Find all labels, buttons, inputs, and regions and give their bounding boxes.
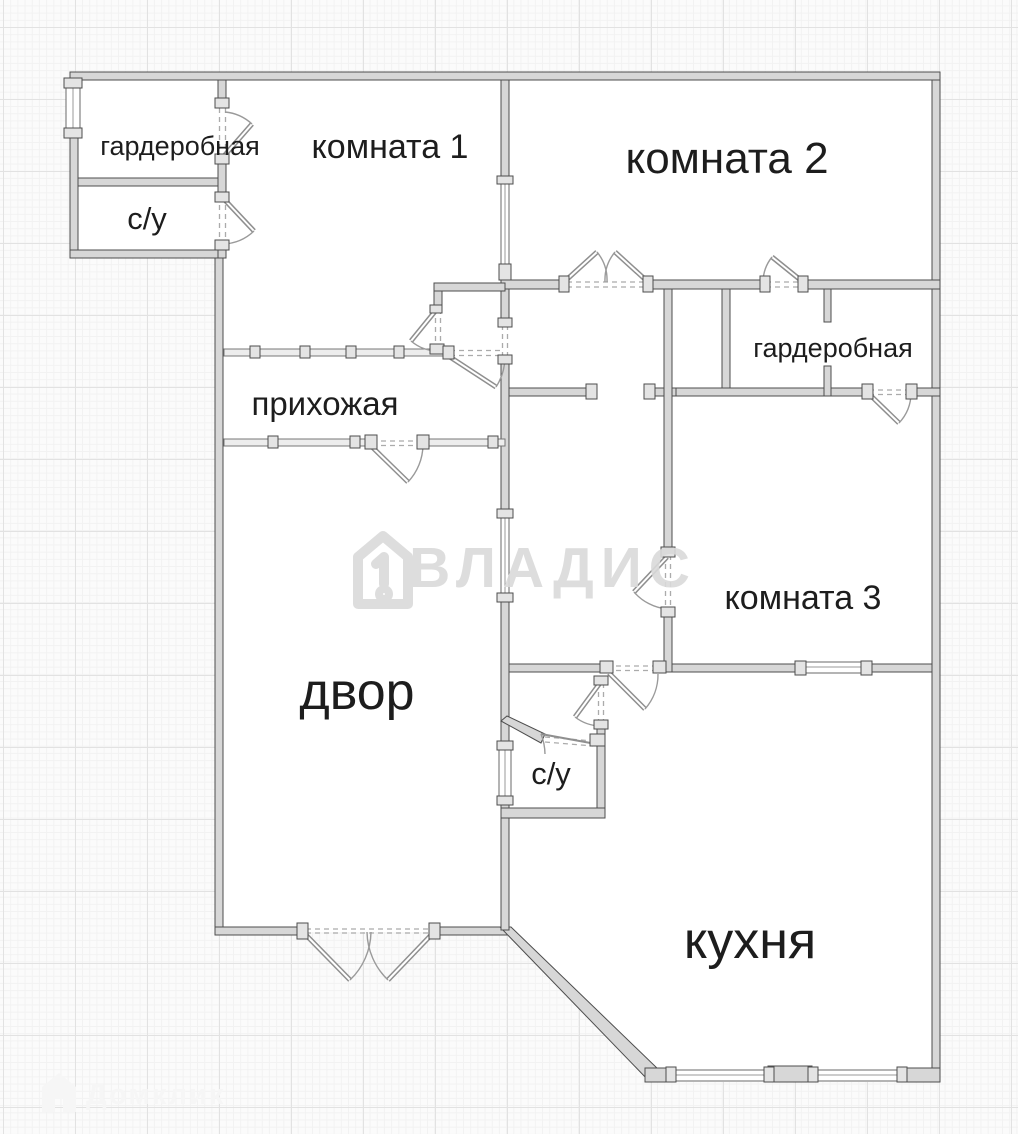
- domclick-house-icon: [42, 1073, 76, 1112]
- room-label-bathroom-middle: с/у: [531, 756, 571, 791]
- room-label-room-2: комната 2: [625, 134, 828, 183]
- room-label-yard: двор: [299, 663, 414, 721]
- room-label-wardrobe-right: гардеробная: [753, 333, 912, 363]
- watermark-bottom-left: Домклик: [42, 1073, 225, 1112]
- room-label-room-1: комната 1: [312, 128, 469, 166]
- watermark-center: ВЛАДИС: [358, 536, 697, 604]
- floor-plan-svg: ВЛАДИС гардеробная комната 1 комната 2 с…: [0, 0, 1018, 1134]
- watermark-domclick-text: Домклик: [86, 1079, 225, 1111]
- room-label-hallway: прихожая: [251, 385, 398, 422]
- room-label-wardrobe-top-left: гардеробная: [100, 131, 259, 161]
- room-label-room-3: комната 3: [725, 579, 882, 617]
- watermark-vladis-text: ВЛАДИС: [409, 536, 697, 600]
- room-label-kitchen: кухня: [684, 912, 816, 970]
- floor-plan-page: ВЛАДИС гардеробная комната 1 комната 2 с…: [0, 0, 1018, 1134]
- room-label-bathroom-top-left: с/у: [127, 201, 167, 236]
